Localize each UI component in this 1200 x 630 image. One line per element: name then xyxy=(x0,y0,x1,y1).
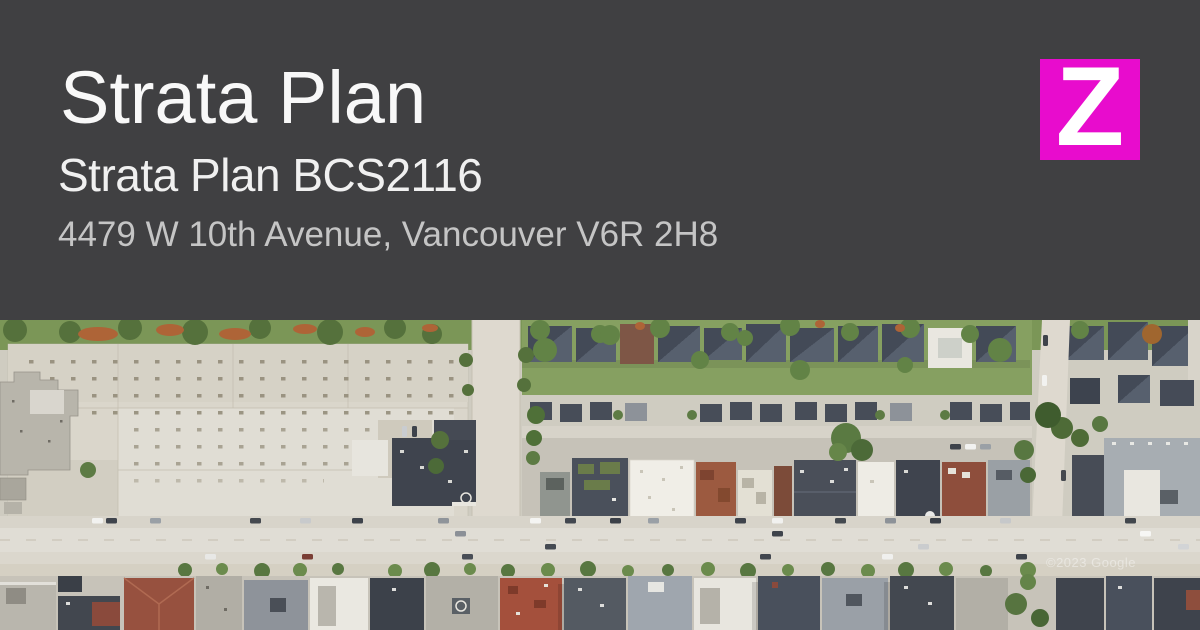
car xyxy=(545,544,556,550)
main-road xyxy=(0,528,1200,552)
property-address: 4479 W 10th Avenue, Vancouver V6R 2H8 xyxy=(58,217,718,252)
strata-plan-preview-card: Strata Plan Strata Plan BCS2116 4479 W 1… xyxy=(0,0,1200,630)
commercial-row xyxy=(522,438,1032,526)
south-parking-lane xyxy=(0,552,1200,564)
aerial-map: ©2023 Google xyxy=(0,320,1200,630)
car xyxy=(455,531,466,537)
car xyxy=(1178,544,1189,550)
car xyxy=(772,531,783,537)
header-banner: Strata Plan Strata Plan BCS2116 4479 W 1… xyxy=(0,0,1200,320)
aerial-satellite-image: ©2023 Google xyxy=(0,320,1200,630)
car xyxy=(918,544,929,550)
brand-logo: Z xyxy=(1040,59,1140,160)
strata-plan-id: Strata Plan BCS2116 xyxy=(58,152,482,198)
car xyxy=(1140,531,1151,537)
footing-grid xyxy=(16,350,462,416)
brand-logo-letter: Z xyxy=(1056,51,1124,163)
rear-lane xyxy=(522,426,1032,440)
google-watermark: ©2023 Google xyxy=(1046,555,1136,570)
south-houses-row xyxy=(0,574,1200,630)
north-parking-lane xyxy=(0,516,1200,528)
page-title: Strata Plan xyxy=(60,61,426,135)
